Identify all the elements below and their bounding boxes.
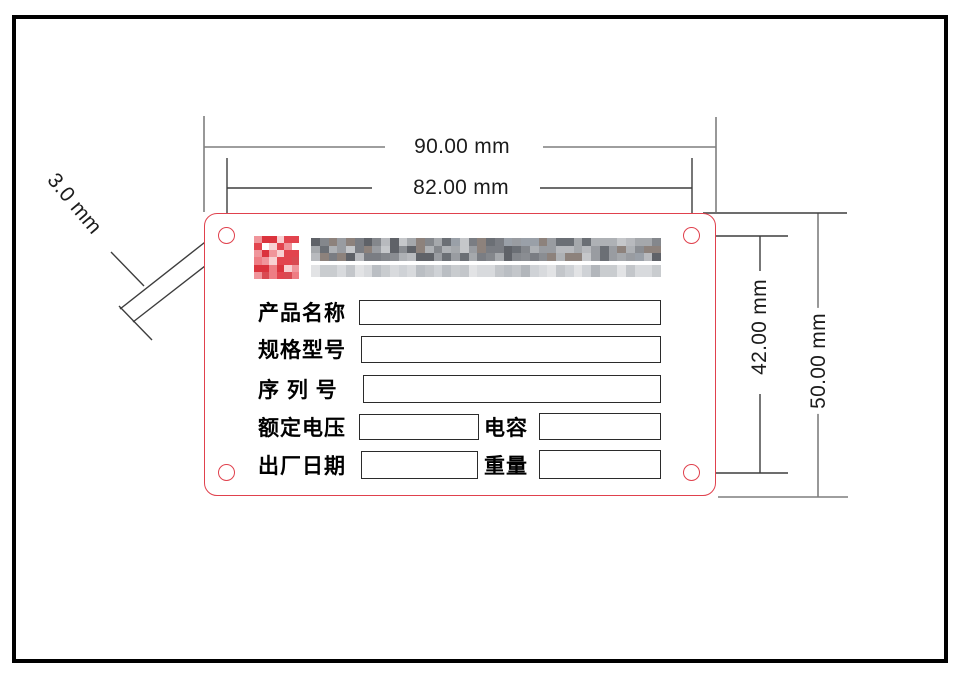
company-name-pixelated xyxy=(311,238,661,261)
company-subtitle-pixelated xyxy=(311,265,661,277)
mounting-hole-top-left xyxy=(218,227,235,244)
field-box-product-name xyxy=(359,300,661,325)
company-logo-icon xyxy=(254,236,299,279)
field-box-manufacture-date xyxy=(361,451,478,479)
field-label-capacitance: 电容 xyxy=(484,412,528,442)
field-label-rated-voltage: 额定电压 xyxy=(258,412,346,442)
mounting-hole-bottom-right xyxy=(683,464,700,481)
field-box-weight xyxy=(539,450,661,479)
nameplate-label: 产品名称 规格型号 序 列 号 额定电压 电容 出厂日期 重量 xyxy=(204,213,716,496)
dim-hole-spacing-x: 82.00 mm xyxy=(408,176,514,200)
drawing-canvas: { "dimensions": { "plate_width": "90.00 … xyxy=(0,0,960,678)
mounting-hole-bottom-left xyxy=(218,464,235,481)
mounting-hole-top-right xyxy=(683,227,700,244)
field-label-manufacture-date: 出厂日期 xyxy=(258,450,346,480)
dim-hole-spacing-y: 42.00 mm xyxy=(748,274,772,380)
field-label-product-name: 产品名称 xyxy=(258,297,346,327)
field-label-weight: 重量 xyxy=(484,450,528,480)
field-box-capacitance xyxy=(539,413,661,440)
dim-plate-width: 90.00 mm xyxy=(409,135,515,159)
field-label-serial-number: 序 列 号 xyxy=(258,374,338,404)
field-box-serial-number xyxy=(363,375,661,403)
field-box-spec-model xyxy=(361,336,661,363)
field-label-spec-model: 规格型号 xyxy=(258,334,346,364)
dim-plate-height: 50.00 mm xyxy=(807,308,831,414)
field-box-rated-voltage xyxy=(359,414,479,440)
